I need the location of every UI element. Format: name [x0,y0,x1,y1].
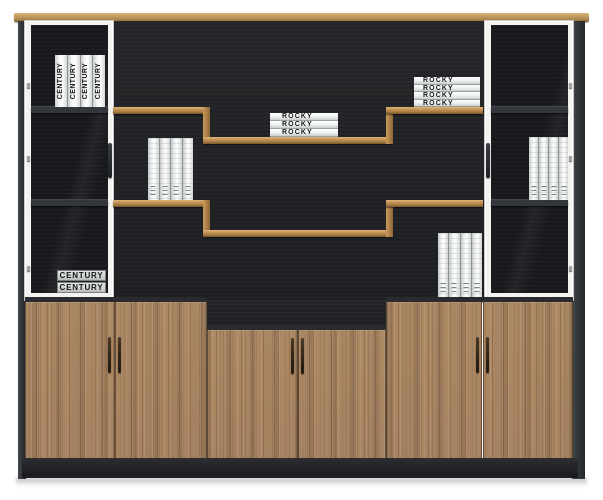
book-spine: CENTURY [57,282,106,293]
book-spine: CENTURY [67,55,80,107]
binder-label [561,186,566,197]
hinge-icon [569,266,572,271]
book-spine: CENTURY [92,55,105,107]
binder [159,138,171,200]
binder [182,138,194,200]
door-handle [118,337,121,373]
rocky-stack-low: ROCKY ROCKY ROCKY [270,113,338,137]
book-spine: CENTURY [55,55,67,107]
binder-label [452,283,457,294]
middle-binders-left [148,138,193,200]
hinge-icon [27,266,30,271]
book-spine: CENTURY [57,270,106,281]
upper-shelf-left [113,107,210,114]
lower-shelf-left [113,200,210,207]
binder-label [174,186,179,197]
binder [448,233,459,297]
binder-label [463,283,468,294]
glass-shelf [31,200,108,206]
base-plinth [22,458,578,478]
book-spine: CENTURY [80,55,93,107]
glass-shelf [491,200,568,206]
binder-label [185,186,190,197]
binder-label [151,186,156,197]
binder [548,137,558,200]
door-handle [301,338,304,374]
left-glass-cabinet: CENTURY CENTURY CENTURY CENTURY CENTURY … [25,21,113,300]
century-flat-books: CENTURY CENTURY [57,269,106,293]
binder [438,233,448,297]
glass-shelf [31,107,108,113]
door-handle [486,337,489,373]
binder-label [162,186,167,197]
book-spine: ROCKY [270,121,338,129]
book-spine: ROCKY [270,129,338,137]
binder-label [541,186,546,197]
lower-door-6 [483,302,573,458]
binder [529,137,538,200]
door-handle [476,337,479,373]
hinge-icon [569,156,572,161]
lower-door-3 [207,330,298,458]
left-glass-door-handle [108,143,112,178]
book-spine: ROCKY [270,113,338,121]
lower-door-5 [386,302,482,458]
lower-shelf-right [386,200,483,207]
binder [538,137,548,200]
book-spine: ROCKY [414,85,480,93]
binder [471,233,482,297]
upper-shelf-right [386,107,483,114]
binder-label [551,186,556,197]
binder [170,138,182,200]
binder [148,138,159,200]
right-glass-cabinet [485,21,573,300]
binder-label [441,283,446,294]
upper-shelf-center [203,137,393,144]
hinge-icon [27,156,30,161]
floor-shadow [16,478,587,487]
lower-door-1 [25,302,115,458]
book-spine: ROCKY [414,92,480,100]
book-spine: ROCKY [414,77,480,85]
right-glass-interior [491,25,568,293]
middle-binders-center [438,233,482,297]
right-glass-door-handle [486,143,490,178]
rocky-stack-high: ROCKY ROCKY ROCKY ROCKY [414,77,480,107]
lower-door-4 [298,330,386,458]
binder-label [531,186,536,197]
binder-label [474,283,479,294]
hinge-icon [27,83,30,88]
book-spine: ROCKY [414,100,480,108]
left-glass-interior: CENTURY CENTURY CENTURY CENTURY CENTURY … [31,25,108,293]
door-handle [291,338,294,374]
binder [558,137,568,200]
door-handle [108,337,111,373]
lower-door-2 [115,302,207,458]
hinge-icon [569,83,572,88]
right-cabinet-binders [529,137,568,200]
bookcase-photo: CENTURY CENTURY CENTURY CENTURY CENTURY … [0,0,603,500]
right-side-panel [572,21,585,479]
glass-shelf [491,107,568,113]
lower-shelf-center [203,230,393,237]
binder [460,233,471,297]
century-upright-books: CENTURY CENTURY CENTURY CENTURY [55,55,105,107]
